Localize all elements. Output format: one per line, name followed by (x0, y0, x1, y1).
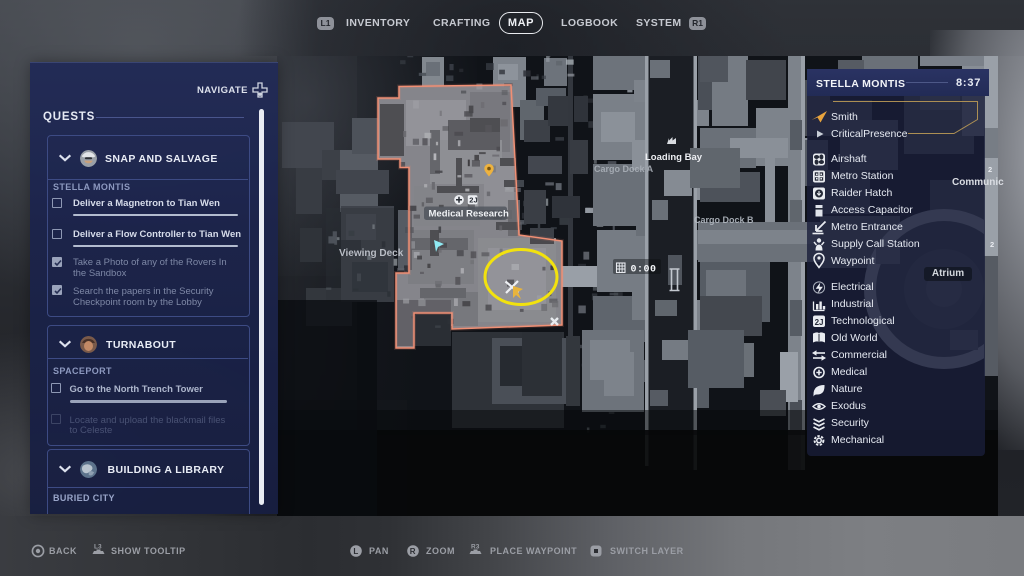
svg-text:R3: R3 (471, 544, 480, 551)
svg-text:L3: L3 (94, 544, 102, 551)
svg-text:L: L (353, 547, 358, 556)
svg-text:R: R (410, 547, 416, 556)
svg-text:2J: 2J (815, 318, 824, 327)
